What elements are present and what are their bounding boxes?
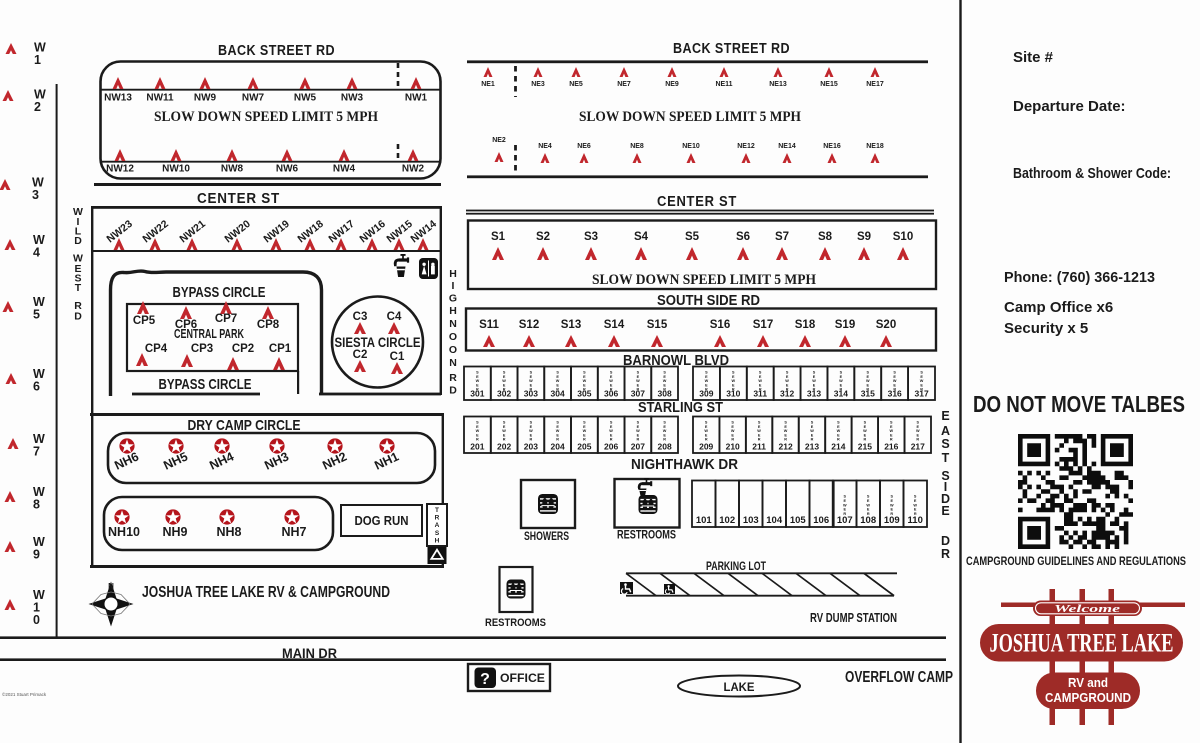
svg-text:107: 107: [837, 515, 853, 526]
svg-text:4: 4: [33, 246, 40, 260]
svg-text:215: 215: [858, 442, 872, 452]
svg-text:306: 306: [604, 389, 618, 399]
svg-text:CP3: CP3: [191, 343, 213, 355]
svg-text:G: G: [449, 293, 457, 305]
svg-text:304: 304: [551, 389, 565, 399]
svg-text:S2: S2: [536, 231, 550, 243]
svg-text:?: ?: [480, 671, 490, 688]
svg-text:JOSHUA TREE LAKE: JOSHUA TREE LAKE: [990, 629, 1174, 658]
svg-text:103: 103: [743, 515, 759, 526]
svg-text:311: 311: [753, 389, 767, 399]
svg-text:CAMPGROUND: CAMPGROUND: [1045, 690, 1131, 705]
svg-text:NH10: NH10: [108, 525, 140, 539]
svg-text:105: 105: [790, 515, 807, 526]
svg-text:NE5: NE5: [569, 81, 583, 88]
svg-text:S17: S17: [753, 319, 773, 331]
svg-text:NE13: NE13: [769, 81, 787, 88]
svg-text:T: T: [942, 451, 950, 465]
svg-text:N: N: [449, 318, 457, 330]
svg-text:SLOW DOWN SPEED LIMIT 5 MPH: SLOW DOWN SPEED LIMIT 5 MPH: [154, 109, 379, 125]
svg-text:S8: S8: [818, 231, 833, 243]
svg-text:2: 2: [34, 100, 41, 114]
svg-text:SLOW DOWN SPEED LIMIT 5 MPH: SLOW DOWN SPEED LIMIT 5 MPH: [579, 109, 802, 125]
svg-text:203: 203: [524, 442, 538, 452]
svg-text:S18: S18: [795, 319, 816, 331]
svg-text:NE11: NE11: [715, 81, 732, 88]
svg-text:313: 313: [807, 389, 821, 399]
svg-text:Departure Date:: Departure Date:: [1013, 98, 1126, 115]
svg-text:Welcome: Welcome: [1054, 603, 1120, 615]
svg-text:E: E: [914, 499, 917, 503]
svg-text:NW1: NW1: [405, 93, 428, 104]
svg-text:NE6: NE6: [577, 143, 591, 150]
svg-text:NW13: NW13: [104, 93, 132, 104]
svg-text:310: 310: [726, 389, 740, 399]
svg-text:S3: S3: [584, 231, 598, 243]
svg-text:NE14: NE14: [778, 143, 796, 150]
svg-text:LAKE: LAKE: [724, 682, 755, 694]
svg-text:C4: C4: [387, 311, 402, 323]
svg-text:NH7: NH7: [281, 525, 306, 539]
svg-text:0: 0: [33, 613, 40, 627]
svg-text:CAMPGROUND GUIDELINES AND REGU: CAMPGROUND GUIDELINES AND REGULATIONS: [966, 556, 1186, 568]
svg-text:STARLING ST: STARLING ST: [638, 400, 723, 416]
svg-text:NW5: NW5: [294, 93, 317, 104]
svg-text:W: W: [866, 503, 870, 507]
svg-text:303: 303: [524, 389, 538, 399]
svg-text:NW2: NW2: [402, 164, 425, 175]
svg-text:CENTER ST: CENTER ST: [197, 191, 280, 207]
svg-text:S16: S16: [710, 319, 730, 331]
svg-text:NE18: NE18: [866, 143, 884, 150]
svg-text:R: R: [435, 515, 440, 522]
svg-text:R: R: [449, 372, 457, 384]
svg-text:NE12: NE12: [737, 143, 755, 150]
svg-text:RESTROOMS: RESTROOMS: [617, 530, 676, 542]
svg-text:DOG RUN: DOG RUN: [355, 514, 409, 528]
svg-text:Phone: (760) 366-1213: Phone: (760) 366-1213: [1004, 269, 1155, 286]
svg-text:DRY CAMP CIRCLE: DRY CAMP CIRCLE: [188, 417, 301, 434]
svg-text:312: 312: [780, 389, 794, 399]
svg-text:S12: S12: [519, 319, 539, 331]
svg-text:NE8: NE8: [630, 143, 644, 150]
svg-text:SOUTH SIDE RD: SOUTH SIDE RD: [657, 293, 760, 309]
svg-text:I: I: [452, 280, 455, 292]
svg-text:315: 315: [861, 389, 875, 399]
svg-text:CP1: CP1: [269, 343, 292, 355]
svg-text:NE10: NE10: [682, 143, 700, 150]
svg-text:S: S: [844, 495, 847, 499]
svg-text:Site #: Site #: [1013, 49, 1054, 66]
svg-text:5: 5: [33, 308, 40, 322]
svg-text:H: H: [449, 305, 457, 317]
svg-text:NE7: NE7: [617, 81, 631, 88]
svg-text:NW11: NW11: [146, 93, 174, 104]
svg-text:3: 3: [32, 188, 39, 202]
svg-text:CENTRAL PARK: CENTRAL PARK: [174, 327, 244, 341]
svg-text:E: E: [891, 508, 894, 512]
svg-text:NE1: NE1: [481, 81, 495, 88]
svg-text:S: S: [941, 437, 949, 451]
svg-text:E: E: [867, 499, 870, 503]
svg-text:W: W: [890, 503, 894, 507]
svg-text:E: E: [914, 508, 917, 512]
svg-text:D: D: [74, 311, 82, 323]
svg-text:210: 210: [726, 442, 740, 452]
svg-text:©2021 Stuart Primack: ©2021 Stuart Primack: [2, 691, 47, 697]
svg-text:E: E: [941, 504, 949, 518]
svg-text:OVERFLOW CAMP: OVERFLOW CAMP: [845, 669, 953, 686]
svg-text:D: D: [941, 534, 950, 548]
svg-text:T: T: [75, 282, 82, 294]
svg-text:D: D: [74, 235, 82, 247]
svg-text:S13: S13: [561, 319, 581, 331]
svg-text:T: T: [435, 507, 439, 514]
svg-text:NE4: NE4: [538, 143, 552, 150]
svg-text:NE15: NE15: [820, 81, 838, 88]
svg-text:NW7: NW7: [242, 93, 265, 104]
svg-text:S: S: [435, 530, 440, 537]
svg-text:208: 208: [658, 442, 672, 452]
svg-text:305: 305: [577, 389, 591, 399]
svg-text:W: W: [843, 503, 847, 507]
svg-text:1: 1: [34, 53, 41, 67]
svg-text:CP7: CP7: [215, 313, 237, 325]
svg-text:BACK STREET RD: BACK STREET RD: [218, 43, 335, 59]
svg-text:Bathroom & Shower Code:: Bathroom & Shower Code:: [1013, 165, 1171, 182]
svg-text:E: E: [844, 508, 847, 512]
svg-text:S15: S15: [647, 319, 668, 331]
svg-text:204: 204: [551, 442, 565, 452]
svg-text:D: D: [449, 385, 457, 397]
svg-text:C1: C1: [390, 351, 405, 363]
svg-text:201: 201: [470, 442, 484, 452]
svg-text:SLOW DOWN SPEED LIMIT 5 MPH: SLOW DOWN SPEED LIMIT 5 MPH: [592, 272, 817, 288]
svg-text:NW10: NW10: [162, 164, 190, 175]
svg-text:6: 6: [33, 380, 40, 394]
svg-text:RV and: RV and: [1068, 675, 1108, 690]
svg-text:NH9: NH9: [162, 525, 187, 539]
svg-text:214: 214: [831, 442, 845, 452]
svg-text:NE3: NE3: [531, 81, 545, 88]
svg-text:NE17: NE17: [866, 81, 884, 88]
svg-text:NW9: NW9: [194, 93, 217, 104]
svg-text:110: 110: [908, 515, 923, 526]
svg-text:106: 106: [813, 515, 829, 526]
svg-text:307: 307: [631, 389, 645, 399]
svg-text:A: A: [435, 522, 440, 529]
svg-text:BACK STREET RD: BACK STREET RD: [673, 41, 790, 57]
svg-text:NH8: NH8: [216, 525, 241, 539]
svg-text:CENTER ST: CENTER ST: [657, 194, 737, 210]
svg-text:DO NOT MOVE TALBES: DO NOT MOVE TALBES: [973, 391, 1185, 417]
svg-text:CP5: CP5: [133, 315, 156, 327]
svg-text:209: 209: [699, 442, 713, 452]
svg-text:109: 109: [884, 515, 900, 526]
svg-text:S9: S9: [857, 231, 871, 243]
svg-text:Camp Office x6: Camp Office x6: [1004, 299, 1113, 316]
svg-text:S4: S4: [634, 231, 649, 243]
svg-text:316: 316: [888, 389, 902, 399]
svg-text:NW3: NW3: [341, 93, 364, 104]
svg-text:N: N: [449, 357, 457, 369]
svg-text:NW12: NW12: [106, 164, 134, 175]
svg-text:H: H: [435, 537, 440, 544]
svg-text:S1: S1: [491, 231, 506, 243]
svg-text:E: E: [891, 499, 894, 503]
svg-text:CP4: CP4: [145, 343, 168, 355]
svg-text:8: 8: [33, 498, 40, 512]
svg-text:S6: S6: [736, 231, 750, 243]
svg-text:S14: S14: [604, 319, 625, 331]
svg-text:317: 317: [915, 389, 929, 399]
svg-text:108: 108: [860, 515, 876, 526]
svg-text:216: 216: [884, 442, 898, 452]
svg-text:206: 206: [604, 442, 618, 452]
svg-text:301: 301: [470, 389, 484, 399]
svg-text:NW6: NW6: [276, 164, 299, 175]
svg-text:OFFICE: OFFICE: [500, 673, 545, 685]
svg-text:202: 202: [497, 442, 511, 452]
svg-text:NIGHTHAWK DR: NIGHTHAWK DR: [631, 456, 738, 473]
svg-text:S: S: [914, 495, 917, 499]
svg-text:O: O: [449, 331, 457, 343]
svg-text:NE2: NE2: [492, 137, 506, 144]
svg-text:S11: S11: [479, 319, 499, 331]
svg-text:W: W: [913, 503, 917, 507]
svg-text:E: E: [867, 508, 870, 512]
svg-text:SHOWERS: SHOWERS: [524, 531, 569, 543]
svg-text:C2: C2: [353, 349, 368, 361]
svg-text:Security x 5: Security x 5: [1004, 320, 1088, 337]
svg-text:S: S: [867, 495, 870, 499]
svg-text:207: 207: [631, 442, 645, 452]
svg-text:E: E: [941, 409, 949, 423]
svg-text:7: 7: [33, 445, 40, 459]
svg-text:BYPASS CIRCLE: BYPASS CIRCLE: [173, 284, 266, 301]
svg-text:O: O: [449, 344, 457, 356]
svg-text:S19: S19: [835, 319, 855, 331]
svg-text:H: H: [449, 268, 457, 280]
svg-text:NE16: NE16: [823, 143, 841, 150]
svg-text:E: E: [844, 499, 847, 503]
svg-text:A: A: [941, 424, 950, 438]
svg-text:211: 211: [752, 442, 766, 452]
svg-text:NW8: NW8: [221, 164, 244, 175]
svg-text:217: 217: [911, 442, 925, 452]
svg-text:101: 101: [696, 515, 713, 526]
svg-text:S10: S10: [893, 231, 913, 243]
svg-text:309: 309: [699, 389, 713, 399]
svg-text:NW4: NW4: [333, 164, 356, 175]
svg-text:314: 314: [834, 389, 848, 399]
svg-text:PARKING LOT: PARKING LOT: [706, 561, 766, 573]
svg-text:302: 302: [497, 389, 511, 399]
svg-text:JOSHUA TREE LAKE RV & CAMPGROU: JOSHUA TREE LAKE RV & CAMPGROUND: [142, 584, 390, 601]
svg-text:S20: S20: [876, 319, 896, 331]
svg-text:C3: C3: [353, 311, 368, 323]
svg-text:R: R: [941, 547, 950, 561]
svg-text:S5: S5: [685, 231, 700, 243]
svg-text:S: S: [891, 495, 894, 499]
svg-text:S7: S7: [775, 231, 789, 243]
svg-text:213: 213: [805, 442, 819, 452]
svg-text:104: 104: [766, 515, 783, 526]
svg-text:9: 9: [33, 548, 40, 562]
svg-text:N: N: [108, 582, 114, 591]
svg-text:308: 308: [658, 389, 672, 399]
svg-text:212: 212: [779, 442, 793, 452]
svg-text:205: 205: [577, 442, 591, 452]
svg-text:CP2: CP2: [232, 343, 254, 355]
svg-text:RV DUMP STATION: RV DUMP STATION: [810, 611, 897, 625]
svg-text:CP8: CP8: [257, 319, 280, 331]
svg-text:102: 102: [719, 515, 735, 526]
svg-text:NE9: NE9: [665, 81, 679, 88]
svg-text:BYPASS CIRCLE: BYPASS CIRCLE: [159, 376, 252, 393]
svg-text:SIESTA CIRCLE: SIESTA CIRCLE: [335, 335, 421, 350]
svg-text:RESTROOMS: RESTROOMS: [485, 617, 546, 629]
